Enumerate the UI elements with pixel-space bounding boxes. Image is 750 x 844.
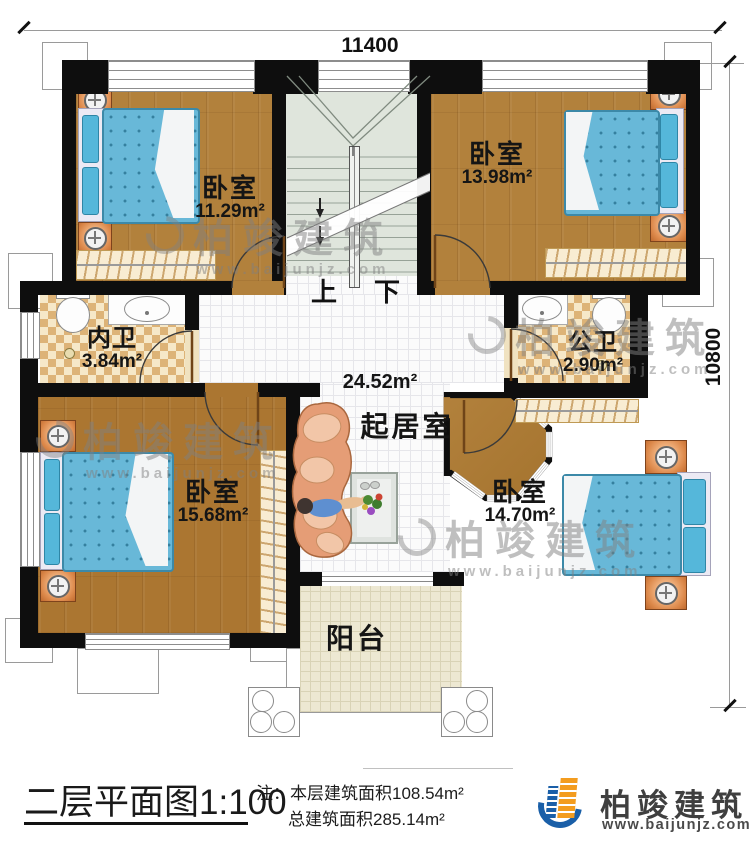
ledge-bottom (77, 648, 159, 694)
label-public-bath: 公卫 2.90m² (533, 330, 653, 376)
wall-stair-left (272, 60, 286, 281)
window-top-right (482, 60, 648, 92)
lamp-icon (47, 575, 70, 598)
floor-plan-canvas: 11400 10800 (0, 0, 750, 844)
lamp-icon (658, 215, 681, 238)
coffee-table (350, 472, 398, 544)
label-balcony: 阳台 (292, 624, 422, 654)
sink (124, 296, 170, 322)
wall (20, 383, 205, 397)
pillow (660, 114, 678, 160)
column-circle (466, 690, 488, 712)
wall-left-upper (62, 74, 76, 281)
note-line-1: 注：本层建筑面积108.54m² (256, 779, 464, 804)
label-bedroom-br: 卧室 14.70m² (455, 478, 585, 527)
wall (228, 633, 300, 648)
label-bedroom-tr: 卧室 13.98m² (432, 140, 562, 189)
pillow (660, 162, 678, 208)
door-opening-bedroom-tr (435, 281, 490, 295)
company-logo-icon (538, 776, 594, 832)
wall (284, 281, 286, 295)
door-opening-bedroom-bl (205, 383, 258, 397)
logo-building-orange (557, 778, 577, 818)
dimension-line-top (24, 30, 722, 31)
pillow (82, 167, 99, 215)
wall (20, 281, 232, 295)
wall (504, 383, 648, 398)
lamp-icon (655, 582, 678, 605)
wall-right-upper (686, 74, 700, 281)
wardrobe (515, 399, 639, 423)
window-inner-bath (20, 312, 40, 359)
wall (300, 572, 322, 586)
nightstand (40, 570, 76, 602)
door-opening-bedroom-tl (232, 281, 284, 295)
stair-rail (349, 146, 360, 288)
column-circle (273, 711, 295, 733)
note-divider (363, 768, 513, 769)
toilet (592, 297, 626, 333)
pillow (82, 115, 99, 163)
door-opening-inner-bath (185, 330, 199, 382)
label-inner-bath: 内卫 3.84m² (52, 326, 172, 372)
pillow (683, 527, 706, 573)
wall (20, 281, 38, 312)
wall-stair-right (417, 60, 431, 281)
wardrobe (545, 248, 687, 278)
column (441, 687, 493, 737)
label-living-area: 24.52m² (315, 372, 445, 394)
column-circle (443, 711, 465, 733)
label-bedroom-tl: 卧室 11.29m² (165, 174, 295, 223)
wall-bedroom-bl-east (286, 383, 300, 648)
balcony-sliding-door (322, 572, 433, 586)
wall (417, 281, 435, 295)
pillow (44, 513, 60, 565)
window-stairs (318, 60, 410, 92)
column-circle (466, 711, 488, 733)
dimension-width: 11400 (330, 34, 410, 58)
label-stairs-down: 下 (374, 272, 400, 309)
title-underline (24, 822, 248, 825)
dim-tick (17, 21, 30, 34)
dim-tick (723, 699, 736, 712)
lamp-icon (47, 425, 70, 448)
window-bottom (85, 633, 230, 650)
nightstand (645, 440, 687, 474)
column-circle (252, 690, 274, 712)
wall (185, 295, 199, 330)
plan-title: 二层平面图1:100 (24, 774, 287, 825)
lamp-icon (655, 446, 678, 469)
wall (490, 281, 700, 295)
dimension-height: 10800 (702, 317, 726, 397)
wall (504, 295, 518, 328)
dim-leader (700, 63, 744, 64)
note-line-2: 总建筑面积285.14m² (288, 805, 445, 830)
nightstand (40, 420, 76, 452)
column (248, 687, 300, 737)
door-opening-public-bath (504, 328, 518, 378)
dim-tick (713, 21, 726, 34)
wall (20, 357, 38, 452)
pillow (683, 479, 706, 525)
sink (522, 296, 562, 321)
label-living-room: 起居室 (337, 412, 477, 442)
column-circle (250, 711, 272, 733)
window-bedroom-bl (20, 452, 40, 567)
lamp-icon (84, 227, 107, 250)
label-stairs-up: 上 (311, 272, 337, 309)
window-top-left (108, 60, 255, 92)
label-bedroom-bl: 卧室 15.68m² (148, 478, 278, 527)
nightstand (645, 576, 687, 610)
wardrobe (76, 250, 216, 280)
wall (20, 633, 85, 648)
pillow (44, 459, 60, 511)
floor-hall-corridor (199, 295, 504, 383)
dim-tick (723, 55, 736, 68)
company-website: www.baijunjz.com (602, 817, 750, 833)
wall (433, 572, 464, 586)
